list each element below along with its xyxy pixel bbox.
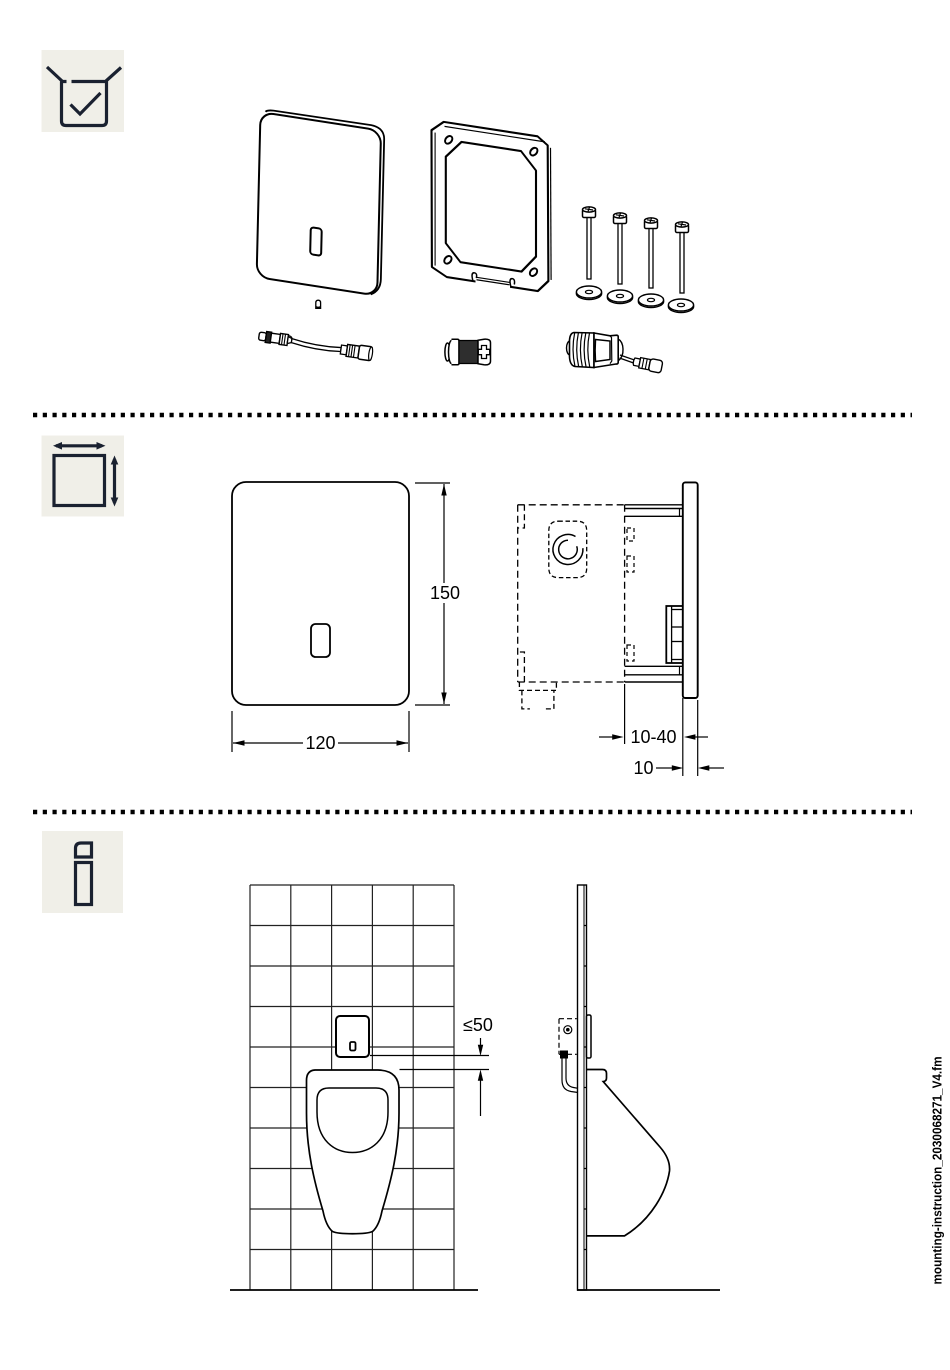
svg-text:150: 150 (430, 583, 460, 603)
svg-text:10: 10 (633, 758, 653, 778)
svg-text:≤50: ≤50 (463, 1015, 493, 1035)
svg-text:120: 120 (305, 733, 335, 753)
svg-text:10-40: 10-40 (630, 727, 676, 747)
svg-text:mounting-instruction_203006827: mounting-instruction_2030068271_V4.fm (931, 1057, 945, 1285)
